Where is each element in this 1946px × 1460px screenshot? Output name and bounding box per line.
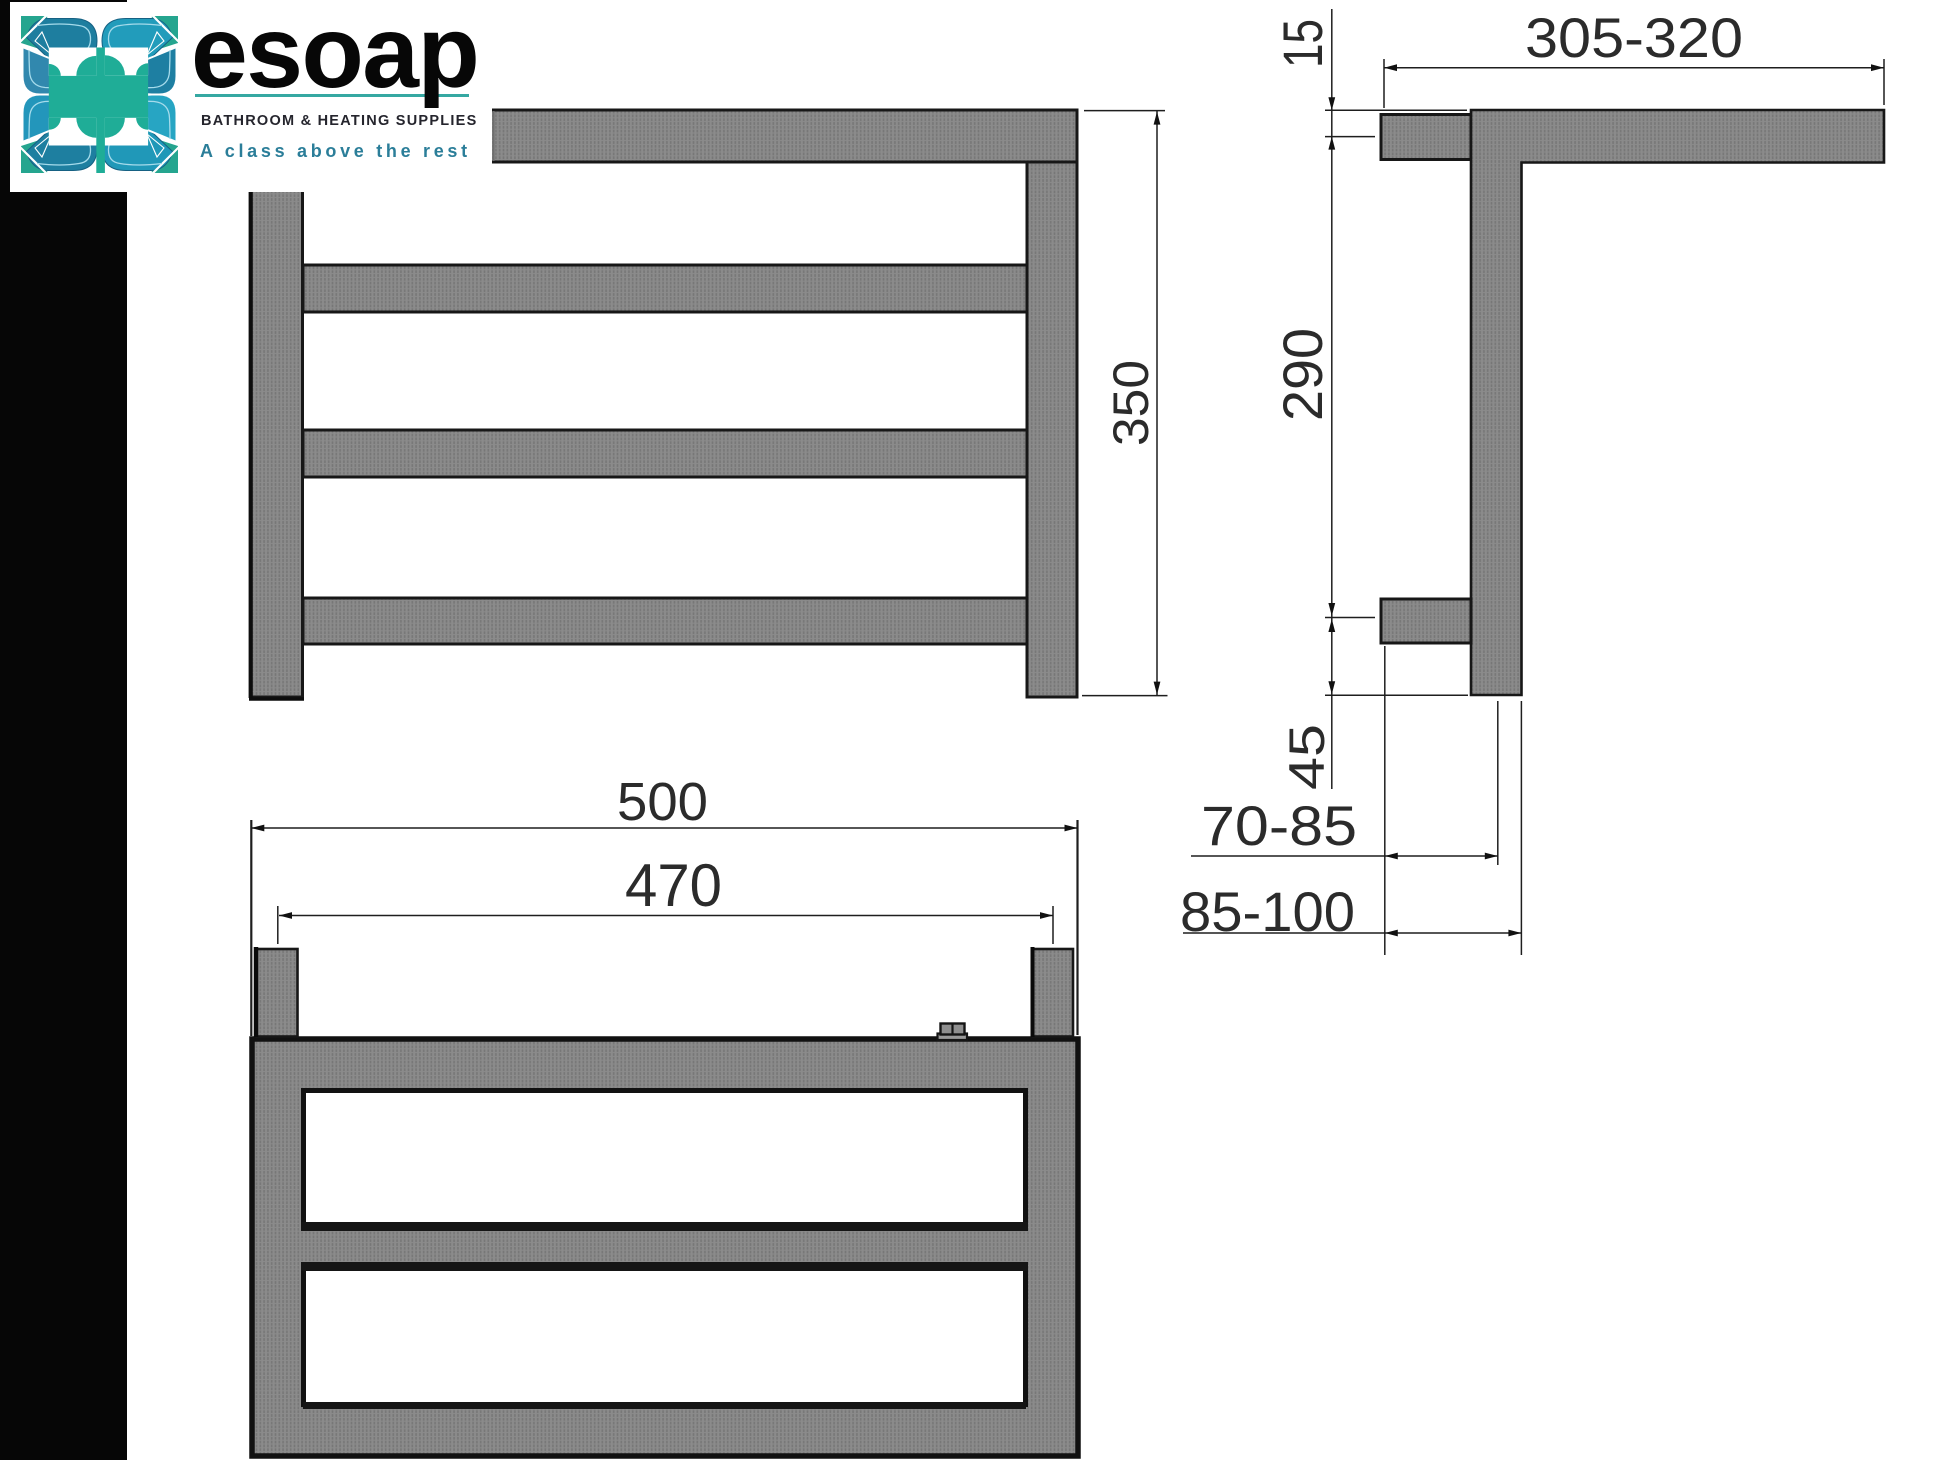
svg-text:290: 290	[1271, 328, 1334, 421]
svg-text:70-85: 70-85	[1201, 794, 1357, 857]
svg-text:45: 45	[1279, 724, 1335, 790]
svg-text:470: 470	[625, 852, 722, 919]
svg-text:15: 15	[1271, 19, 1334, 68]
svg-text:500: 500	[617, 772, 708, 832]
svg-text:85-100: 85-100	[1180, 880, 1355, 943]
svg-text:305-320: 305-320	[1525, 6, 1743, 69]
svg-text:350: 350	[1103, 360, 1159, 446]
